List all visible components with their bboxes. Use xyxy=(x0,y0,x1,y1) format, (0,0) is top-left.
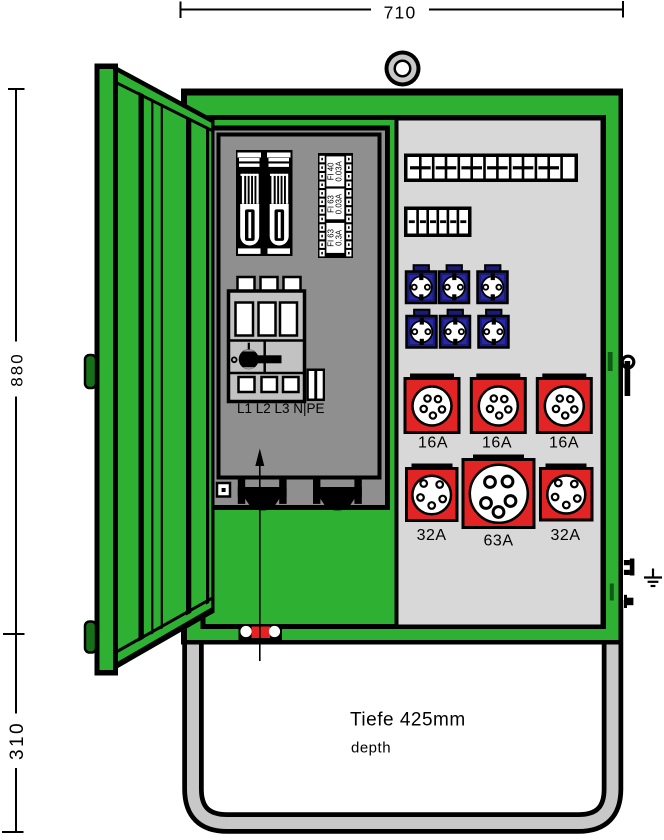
svg-text:0.3A: 0.3A xyxy=(335,229,344,246)
svg-text:710: 710 xyxy=(384,3,417,23)
svg-text:16A: 16A xyxy=(549,435,579,452)
svg-text:Tiefe 425mm: Tiefe 425mm xyxy=(350,710,466,731)
svg-text:16A: 16A xyxy=(418,435,448,452)
svg-text:16A: 16A xyxy=(482,435,512,452)
svg-text:32A: 32A xyxy=(551,527,581,544)
svg-text:0.03A: 0.03A xyxy=(335,160,344,181)
svg-text:310: 310 xyxy=(7,721,28,760)
svg-text:0.03A: 0.03A xyxy=(335,193,344,214)
svg-text:32A: 32A xyxy=(417,527,447,544)
svg-text:880: 880 xyxy=(8,352,27,386)
svg-text:depth: depth xyxy=(351,740,391,757)
svg-text:63A: 63A xyxy=(484,533,514,550)
svg-text:L1 L2 L3 N|PE: L1 L2 L3 N|PE xyxy=(237,401,325,416)
